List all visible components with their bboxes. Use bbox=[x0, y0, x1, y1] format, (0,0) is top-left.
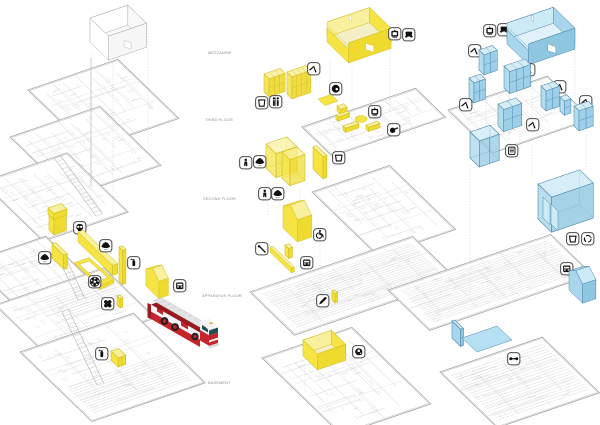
svg-text:SECOND FLOOR: SECOND FLOOR bbox=[203, 196, 236, 201]
svg-text:THIRD FLOOR: THIRD FLOOR bbox=[205, 117, 233, 122]
svg-text:MEZZANINE: MEZZANINE bbox=[208, 50, 232, 55]
svg-text:APPARATUS FLOOR: APPARATUS FLOOR bbox=[202, 293, 242, 298]
svg-text:BASEMENT: BASEMENT bbox=[208, 380, 231, 385]
